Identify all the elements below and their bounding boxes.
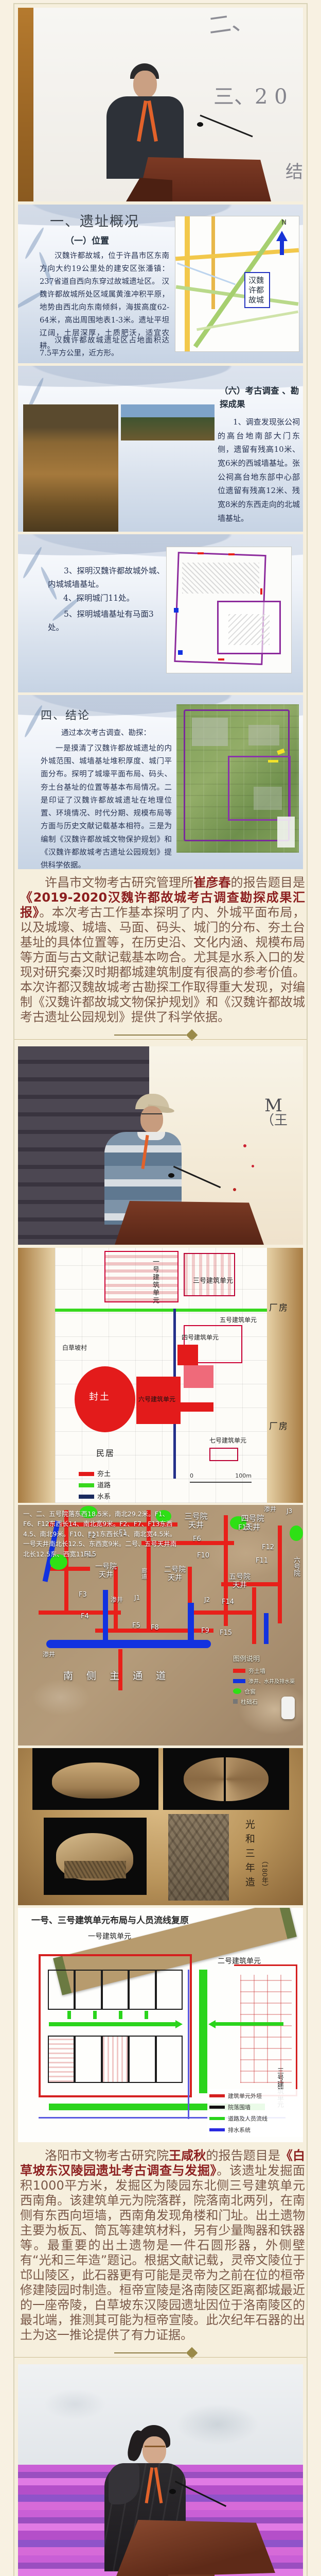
speaker3-glasses (145, 2446, 165, 2447)
microphone-head (169, 2489, 176, 2494)
room-row (48, 2036, 183, 2083)
section-divider (18, 1026, 303, 1045)
north-label: N (281, 219, 287, 227)
speaker-name: 崔彦春 (193, 875, 230, 890)
inscription-label: 光和三年造 (243, 1819, 255, 1891)
map-dot (252, 1165, 254, 1167)
well-label: J1 (134, 1595, 140, 1602)
artifact-photo (44, 1818, 147, 1895)
finding-item: 5、探明城墙基址有马面3处。 (48, 607, 166, 635)
plan-label: 厂房 (269, 1422, 289, 1432)
plan-label: 一号建筑单元 (151, 1258, 158, 1304)
microphone-head (168, 1173, 174, 1178)
main-path-label: 南 侧 主 通 道 (63, 1671, 171, 1682)
corridor-label: 廊道 (140, 1568, 147, 1579)
feature-label: F15 (220, 1630, 232, 1637)
feature-label: F12 (262, 1544, 274, 1552)
feature-label: F11 (256, 1557, 268, 1565)
feature-label: F8 (151, 1624, 159, 1632)
microphone-head (197, 122, 203, 127)
report-paragraph-2: 洛阳市文物考古研究院王咸秋的报告题目是《白草坡东汉陵园遗址考古调查与发掘》。该遗… (18, 2148, 307, 2343)
slide-siteplan[interactable]: 一号建筑单元 三号建筑单元 五号建筑单元 四号建筑单元 白草坡村 封土 六号建筑… (18, 1248, 303, 1503)
location-map: N 汉魏许都故城 (175, 216, 299, 352)
section-divider (18, 2344, 303, 2363)
well-label: 渗井 (111, 1597, 123, 1604)
courtyard-label: 二号院天井 (163, 1566, 187, 1582)
north-arrow-shaft (280, 241, 284, 255)
speaker3-photo[interactable] (18, 2364, 303, 2576)
slide-aerial[interactable]: 一、二、五号院落东西18.5米，南北29.2米。F1、F6、F12东西长14、南… (18, 1505, 303, 1745)
plan-label: 厂房 (269, 1303, 289, 1314)
unit-label: 一号建筑单元 (88, 1933, 131, 1941)
plan-map: 一号建筑单元 三号建筑单元 五号建筑单元 四号建筑单元 白草坡村 封土 六号建筑… (55, 1248, 267, 1503)
slide-layout-restoration[interactable]: 一号、三号建筑单元布局与人员流线复原 一号建筑单元 二号建筑单元 三号建筑单元 (18, 1908, 303, 2142)
slide-body2: 汉魏许都故城遗址区占地面积达7.5平方公里，近方形。 (40, 334, 169, 360)
speaker1-face (133, 71, 157, 98)
unit2-plan (240, 1975, 292, 2083)
plan-label: 白草坡村 (62, 1345, 87, 1352)
feature-label: F3 (79, 1591, 87, 1599)
podium (116, 2520, 275, 2576)
slide-title: （六）考古调查 、勘探成果 (220, 384, 300, 412)
measurement-overlay: 一、二、五号院落东西18.5米，南北29.2米。F1、F6、F12东西长14、南… (23, 1509, 177, 1559)
north-arrow-icon (276, 231, 288, 241)
slide-lead: 通过本次考古调查、勘探： (61, 729, 151, 738)
plan-label: 七号建筑单元 (209, 1437, 246, 1445)
tree-strip (121, 417, 215, 440)
feature-label: F13 (238, 1524, 251, 1532)
feature-label: F6 (193, 1536, 201, 1544)
map-dot (233, 1188, 236, 1191)
feature-label: F15 (84, 1551, 96, 1559)
curtain-column (18, 8, 33, 201)
slide-artifacts[interactable]: 光和三年造 （180年） (18, 1748, 303, 1905)
satellite-map (176, 704, 299, 853)
car (281, 1697, 295, 1719)
finding-item: 4、探明城门11处。 (63, 594, 134, 603)
slide-site-overview[interactable]: 一、遗址概况 （一）位置 汉魏许都故城，位于许昌市区东南方向大约19公里处的建安… (18, 205, 303, 363)
site-box-label: 汉魏许都故城 (244, 272, 270, 308)
institute: 许昌市文物考古研究管理所 (45, 875, 193, 890)
speaker2-face (140, 1106, 163, 1133)
room-row (48, 1970, 183, 2010)
slide-title: 一、遗址概况 (50, 214, 139, 230)
slide-body: 一是摸清了汉魏许都故城遗址的内外城范围、城墙基址堆积厚度、城门平面分布。探明了城… (41, 742, 172, 869)
feature-label: F5 (132, 1622, 140, 1630)
speaker2-collar (137, 1132, 165, 1140)
slide-conclusion[interactable]: 四、结论 通过本次考古调查、勘探： 一是摸清了汉魏许都故城遗址的内外城范围、城墙… (18, 695, 303, 869)
artifact-photo (163, 1748, 289, 1810)
speaker1-photo[interactable]: 二、 三、2 0 结 (18, 8, 303, 201)
screen-text-fragment: 三、2 0 (213, 85, 288, 109)
speaker3-face (142, 2436, 166, 2464)
courtyard-label: 五号院天井 (228, 1573, 252, 1589)
article-frame: 二、 三、2 0 结 一、遗址概况 （一）位置 汉魏许都故城，位于许昌市区东南方… (13, 3, 308, 2576)
artifact-photo (32, 1748, 158, 1810)
slide-findings[interactable]: 3、探明汉魏许都故城外城、内城城墙基址。 4、探明城门11处。 5、探明城墙基址… (18, 534, 303, 692)
plan-label: 民居 (96, 1449, 115, 1458)
inscription-photo (168, 1814, 229, 1901)
screen-text-fragment: 结 (286, 162, 303, 182)
plan-label: 五号建筑单元 (220, 1317, 257, 1324)
plan-label: 四号建筑单元 (182, 1334, 219, 1342)
excavation-photo-left (23, 404, 118, 532)
feature-label: F9 (201, 1628, 209, 1635)
plan-legend: 夯土 道路 水系 (79, 1468, 156, 1502)
mound-label: 封土 (89, 1392, 111, 1403)
speaker2-glasses (141, 1113, 162, 1114)
inscription-year: （180年） (260, 1857, 267, 1890)
feature-label: F1 (119, 1530, 127, 1537)
map-dot (243, 1144, 246, 1147)
feature-label: F2 (88, 1533, 96, 1540)
speaker-name: 王咸秋 (169, 2148, 206, 2163)
institute: 洛阳市文物考古研究院 (45, 2148, 169, 2163)
layout-legend: 建筑单元外垣 院落围墙 道路及人员流线 排水系统 (207, 2089, 303, 2137)
feature-label: F4 (81, 1613, 89, 1621)
feature-label: F10 (197, 1552, 209, 1560)
courtyard-label: 六号院 (292, 1556, 299, 1577)
podium (115, 1201, 264, 1245)
well-label: 渗井 (43, 1651, 55, 1658)
slide-title: 四、结论 (41, 709, 90, 722)
slide-survey-results[interactable]: （六）考古调查 、勘探成果 1、调查发现张公祠的高台地南部大门东侧，遗留有残高1… (18, 366, 303, 532)
survey-map (166, 547, 292, 673)
slide-title: 一号、三号建筑单元布局与人员流线复原 (31, 1916, 189, 1926)
plan-label: 三号建筑单元 (193, 1278, 233, 1285)
report-paragraph-1: 许昌市文物考古研究管理所崔彦春的报告题目是《2019-2020汉魏许都故城考古调… (18, 875, 307, 1025)
well-label: J2 (204, 1597, 210, 1604)
slide-body: 1、调查发现张公祠的高台地南部大门东侧，遗留有残高10米、宽6米的西城墙基址。张… (218, 415, 300, 526)
finding-item: 3、探明汉魏许都故城外城、内城城墙基址。 (48, 564, 166, 591)
feature-label: F14 (222, 1599, 234, 1606)
courtyard-label: 一号院天井 (94, 1563, 118, 1579)
slide-subtitle: （一）位置 (65, 236, 109, 247)
courtyard-label: 三号院天井 (184, 1512, 208, 1530)
speaker2-photo[interactable]: M （王 (18, 1046, 303, 1245)
screen-text-fragment: （王 (261, 1113, 288, 1129)
well-label: 渗井 (264, 1506, 276, 1513)
plan-label: 六号建筑单元 (138, 1396, 175, 1403)
well-label: J3 (287, 1508, 292, 1515)
scale-bar: 0 100m (190, 1475, 252, 1483)
